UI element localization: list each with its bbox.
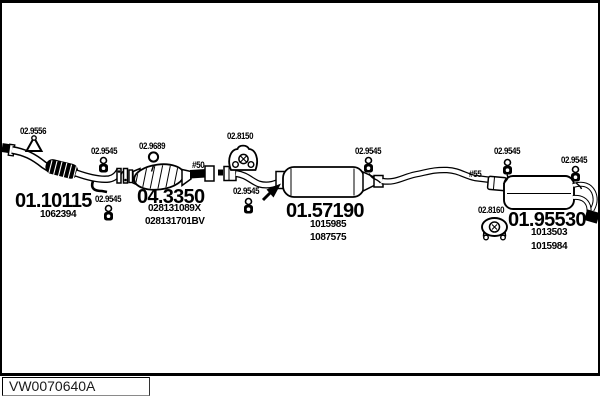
oem-number: 1015984 (531, 241, 567, 252)
oem-number: 1062394 (40, 209, 76, 220)
bracket-mount-icon (229, 146, 257, 170)
clamp-icon (364, 158, 373, 173)
title-block-divider (0, 373, 600, 376)
ref-label-02-9545: 02.9545 (561, 155, 587, 165)
catalog-page: { "parts": { "front_pipe": {"code": "01.… (0, 0, 600, 400)
ref-label-02-9545: 02.9545 (95, 194, 121, 204)
ref-label-02-8160: 02.8160 (478, 205, 504, 215)
ref-label-02-9689: 02.9689 (139, 141, 165, 151)
oem-number: 028131701BV (145, 216, 205, 227)
drawing-number: VW0070640A (9, 378, 95, 394)
pipe-marker-55: #55 (469, 169, 481, 179)
ref-label-02-8150: 02.8150 (227, 131, 253, 141)
ref-label-02-9545: 02.9545 (233, 186, 259, 196)
drawing-number-box: VW0070640A (2, 377, 150, 396)
oem-number: 1015985 (310, 219, 346, 230)
pipe-marker-50: #50 (192, 160, 204, 170)
clamp-icon (503, 160, 512, 175)
oem-number: 1013503 (531, 227, 567, 238)
flex-section (44, 158, 80, 181)
ref-label-02-9545: 02.9545 (355, 146, 381, 156)
ref-label-02-9545: 02.9545 (91, 146, 117, 156)
oval-mount-icon (482, 218, 507, 240)
clamp-icon (104, 206, 113, 221)
oem-number: 028131089X (148, 203, 201, 214)
clamp-icon (571, 167, 580, 182)
clamp-icon (244, 199, 253, 214)
clamp-triangle-icon (27, 136, 42, 151)
oem-number: 1087575 (310, 232, 346, 243)
ref-label-02-9545: 02.9545 (494, 146, 520, 156)
exhaust-diagram (0, 0, 600, 375)
clamp-icon (99, 158, 108, 173)
ref-label-02-9556: 02.9556 (20, 126, 46, 136)
